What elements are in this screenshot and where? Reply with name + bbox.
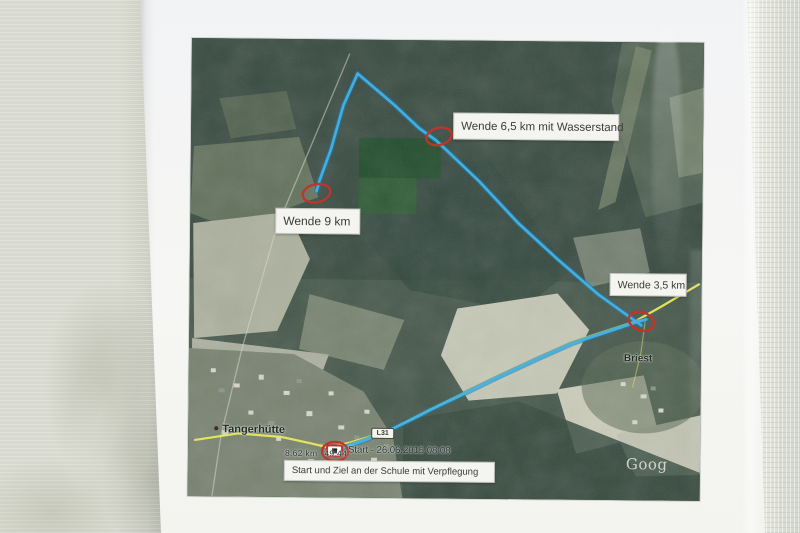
photo-of-course-map: Wende 6,5 km mit Wasserstand Wende 9 km … (0, 0, 800, 533)
gps-track-stats: 8.62 km49:44 (285, 448, 354, 459)
turnaround-3-5km-note: Wende 3,5 km (610, 273, 687, 297)
village-label: Briest (624, 353, 652, 364)
turnaround-9km-note: Wende 9 km (275, 208, 360, 235)
satellite-map-print: Wende 6,5 km mit Wasserstand Wende 9 km … (188, 38, 704, 501)
road-shield-badge: L31 (371, 428, 394, 439)
turnaround-6-5km-note: Wende 6,5 km mit Wasserstand (453, 113, 619, 142)
gps-time: 49:44 (324, 448, 347, 458)
town-dot-icon (214, 426, 218, 430)
printed-paper-sheet: Wende 6,5 km mit Wasserstand Wende 9 km … (138, 0, 766, 533)
start-finish-note: Start und Ziel an der Schule mit Verpfle… (284, 460, 495, 483)
imagery-watermark: Goog (626, 455, 668, 473)
town-label: Tangerhütte (214, 423, 285, 436)
gps-distance: 8.62 km (285, 448, 317, 458)
gps-start-label: Start - 26.06.2015 08:08 (348, 445, 451, 457)
